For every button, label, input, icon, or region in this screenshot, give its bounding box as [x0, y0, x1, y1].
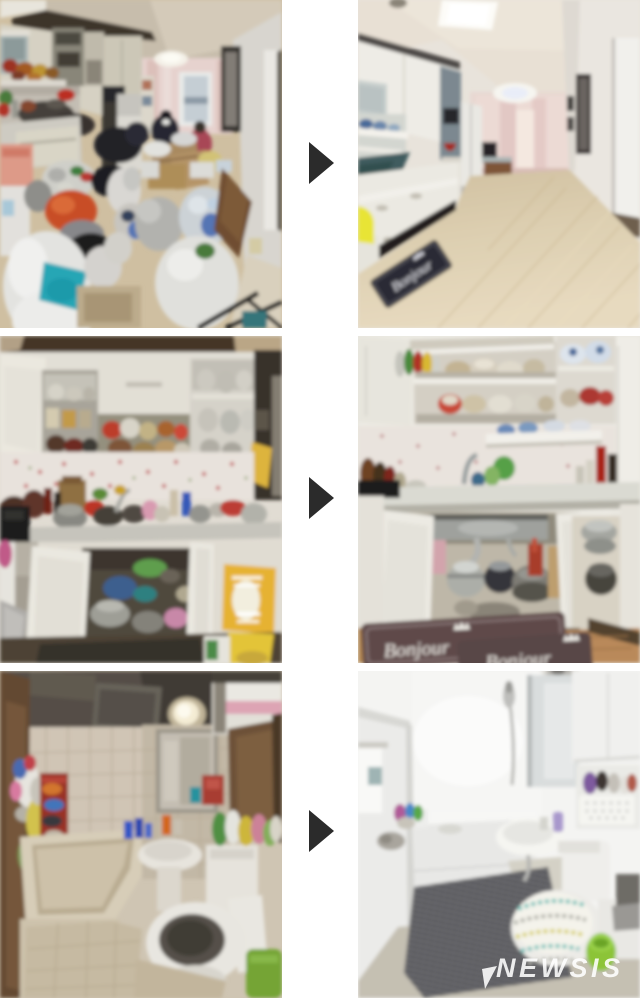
- svg-text:Bonjour: Bonjour: [383, 637, 450, 663]
